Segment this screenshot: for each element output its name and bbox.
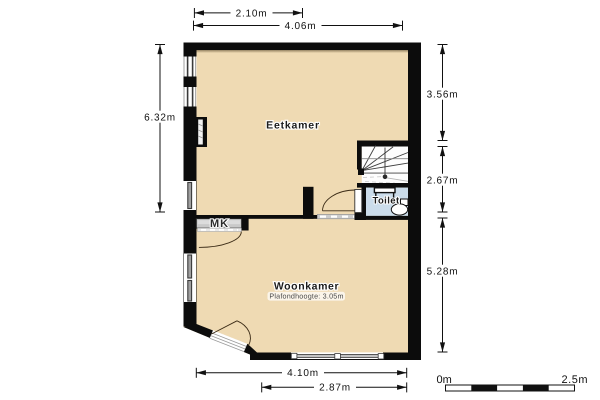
svg-text:2.87m: 2.87m (319, 383, 351, 394)
svg-text:4.10m: 4.10m (287, 368, 319, 379)
svg-text:5.28m: 5.28m (427, 267, 459, 278)
svg-text:Plafondhoogte: 3.05m: Plafondhoogte: 3.05m (269, 292, 343, 301)
svg-text:4.06m: 4.06m (285, 21, 317, 32)
svg-text:Eetkamer: Eetkamer (266, 120, 320, 132)
svg-text:2.10m: 2.10m (236, 8, 268, 19)
svg-text:0m: 0m (437, 374, 452, 386)
svg-text:2.5m: 2.5m (562, 374, 588, 386)
svg-text:Woonkamer: Woonkamer (274, 280, 339, 292)
svg-text:3.56m: 3.56m (427, 90, 459, 101)
svg-text:6.32m: 6.32m (144, 113, 176, 124)
svg-text:2.67m: 2.67m (427, 176, 459, 187)
svg-text:Toilet: Toilet (372, 196, 399, 207)
